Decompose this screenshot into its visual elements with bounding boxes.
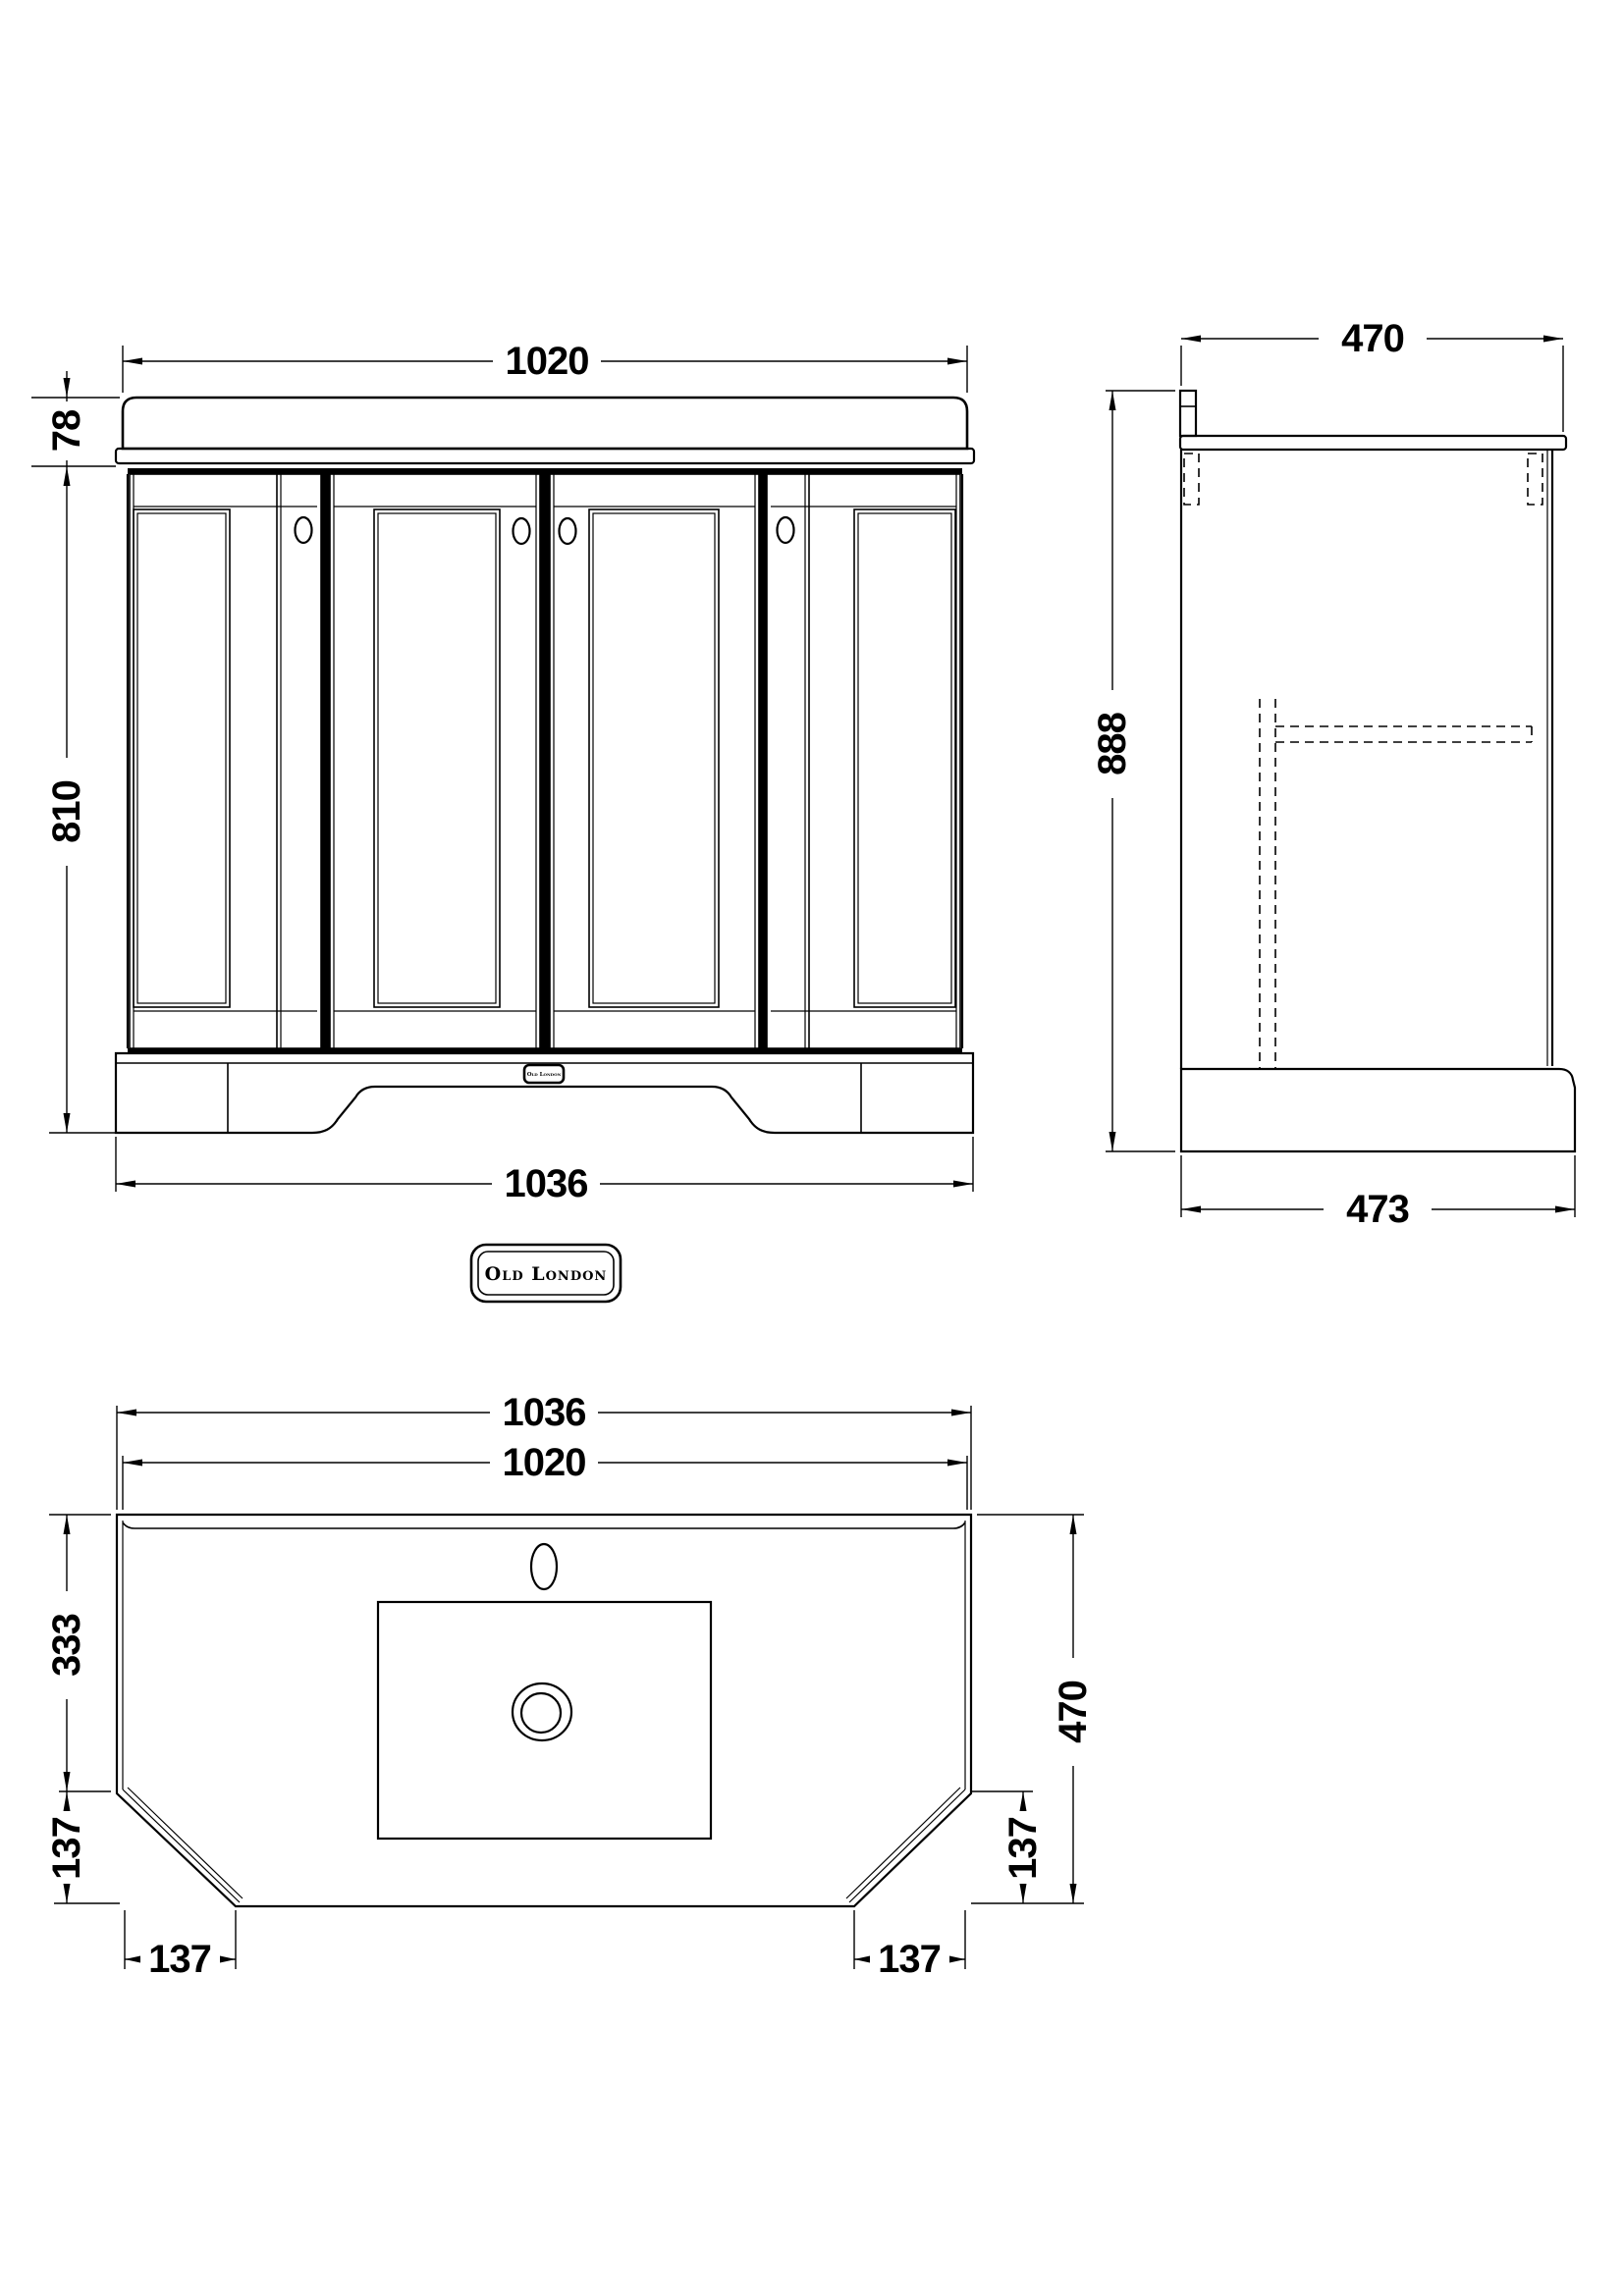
basin-bowl [378, 1602, 711, 1839]
dim-plan-inner-width: 1020 [123, 1441, 967, 1510]
svg-text:1036: 1036 [503, 1391, 586, 1434]
drawing-page: Old London 1020 78 810 [0, 0, 1623, 2296]
door-gap-right [759, 474, 767, 1048]
hidden-bracket-back [1184, 454, 1199, 505]
svg-text:1036: 1036 [505, 1162, 588, 1205]
side-upstand [1180, 391, 1196, 436]
dim-front-top-width: 1020 [123, 340, 967, 393]
hidden-shelf [1260, 699, 1532, 1069]
door-center-left [330, 474, 540, 1048]
plan-worktop-outline [117, 1515, 971, 1906]
svg-text:470: 470 [1052, 1681, 1095, 1743]
brand-badge: Old London [471, 1245, 621, 1302]
dim-side-top-depth: 470 [1181, 317, 1563, 432]
door-knob-4 [778, 517, 794, 543]
svg-text:888: 888 [1091, 712, 1134, 774]
dim-plan-right-front-depth: 137 [971, 1791, 1045, 1903]
dim-plan-left-chamfer-width: 137 [125, 1910, 236, 1981]
dim-side-base-depth: 473 [1181, 1155, 1575, 1231]
door-center-right [550, 474, 759, 1048]
door-gap-center [540, 474, 550, 1048]
dim-plan-left-front-depth: 137 [45, 1791, 120, 1903]
door-center-right-panel [589, 509, 719, 1007]
svg-text:473: 473 [1346, 1188, 1409, 1231]
svg-text:470: 470 [1341, 317, 1404, 360]
front-view: Old London 1020 78 810 [31, 340, 974, 1205]
plan-back-ledge [123, 1522, 965, 1528]
door-knob-1 [296, 517, 312, 543]
plinth-badge: Old London [524, 1065, 564, 1083]
door-knob-3 [560, 518, 576, 544]
svg-text:1020: 1020 [506, 340, 589, 383]
svg-text:137: 137 [45, 1817, 88, 1880]
front-worktop-slab [116, 449, 974, 463]
door-center-left-panel [374, 509, 500, 1007]
dim-front-base-width: 1036 [116, 1137, 973, 1205]
drain-inner [521, 1693, 561, 1733]
front-worktop [123, 398, 967, 449]
svg-text:137: 137 [1001, 1817, 1045, 1880]
tap-hole [531, 1544, 557, 1589]
door-left-panel [134, 509, 230, 1007]
svg-text:137: 137 [148, 1938, 211, 1981]
dim-front-worktop-height: 78 [31, 371, 120, 493]
dim-front-cabinet-height: 810 [45, 493, 116, 1133]
hidden-bracket-front [1528, 454, 1542, 505]
svg-text:78: 78 [45, 409, 88, 452]
svg-text:810: 810 [45, 780, 88, 843]
door-left-angled [130, 474, 321, 1048]
side-plinth [1181, 1069, 1575, 1151]
door-gap-left [321, 474, 330, 1048]
svg-text:1020: 1020 [503, 1441, 586, 1484]
side-worktop [1180, 436, 1566, 450]
plan-view: 1036 1020 333 1 [45, 1391, 1095, 1981]
technical-drawing: Old London 1020 78 810 [0, 0, 1623, 2296]
dim-side-height: 888 [1091, 391, 1175, 1151]
svg-text:137: 137 [878, 1938, 941, 1981]
door-right-angled [767, 474, 960, 1048]
plinth-badge-label: Old London [527, 1072, 562, 1078]
dim-plan-right-chamfer-width: 137 [854, 1910, 965, 1981]
dim-plan-back-depth: 333 [45, 1515, 111, 1791]
side-view: 470 888 473 [1091, 317, 1575, 1231]
door-knob-2 [514, 518, 530, 544]
svg-text:333: 333 [45, 1614, 88, 1677]
brand-badge-label: Old London [485, 1263, 608, 1285]
door-right-panel [854, 509, 955, 1007]
front-cabinet-top-band [128, 468, 962, 474]
